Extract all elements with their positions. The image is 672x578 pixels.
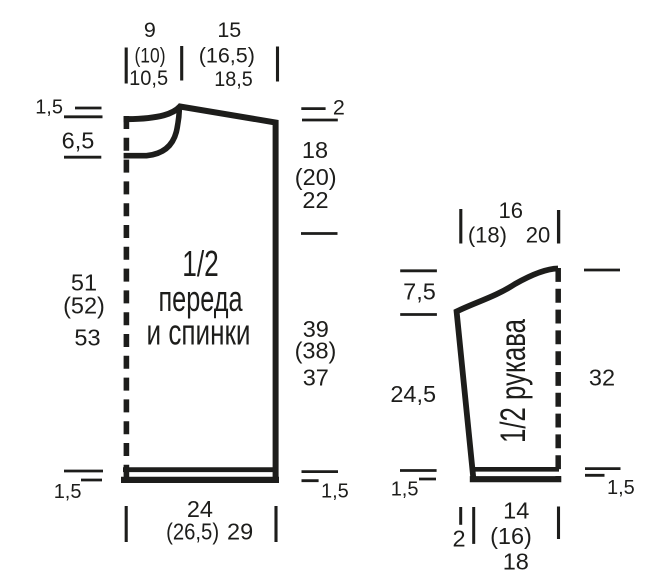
svg-text:16: 16 (498, 198, 522, 223)
svg-text:32: 32 (589, 365, 615, 391)
svg-text:и спинки: и спинки (147, 312, 251, 353)
svg-text:(26,5): (26,5) (166, 519, 219, 545)
svg-text:9: 9 (144, 18, 156, 42)
svg-text:18: 18 (302, 137, 328, 163)
svg-text:22: 22 (302, 187, 328, 213)
svg-text:14: 14 (503, 498, 529, 524)
svg-text:7,5: 7,5 (403, 279, 436, 305)
svg-text:53: 53 (74, 325, 100, 351)
svg-text:1,5: 1,5 (391, 478, 419, 500)
svg-text:1,5: 1,5 (54, 481, 82, 503)
svg-text:2: 2 (452, 526, 465, 552)
svg-text:1,5: 1,5 (607, 477, 635, 499)
svg-text:(52): (52) (63, 293, 105, 319)
svg-text:1,5: 1,5 (321, 480, 349, 502)
svg-text:20: 20 (526, 223, 550, 248)
svg-text:(16,5): (16,5) (199, 43, 255, 67)
svg-text:18: 18 (503, 549, 529, 575)
svg-text:18,5: 18,5 (214, 67, 253, 91)
svg-text:(38): (38) (295, 338, 337, 364)
svg-text:(16): (16) (490, 523, 532, 549)
svg-text:(10): (10) (135, 43, 166, 67)
svg-text:37: 37 (303, 365, 329, 391)
svg-text:1,5: 1,5 (35, 97, 63, 119)
svg-text:6,5: 6,5 (62, 128, 95, 154)
svg-text:2: 2 (333, 95, 345, 119)
svg-text:(18): (18) (468, 223, 507, 248)
svg-text:1/2 рукава: 1/2 рукава (494, 319, 533, 443)
svg-text:10,5: 10,5 (129, 66, 168, 90)
svg-text:24,5: 24,5 (390, 381, 436, 407)
svg-text:29: 29 (227, 519, 253, 545)
svg-text:15: 15 (217, 18, 241, 42)
